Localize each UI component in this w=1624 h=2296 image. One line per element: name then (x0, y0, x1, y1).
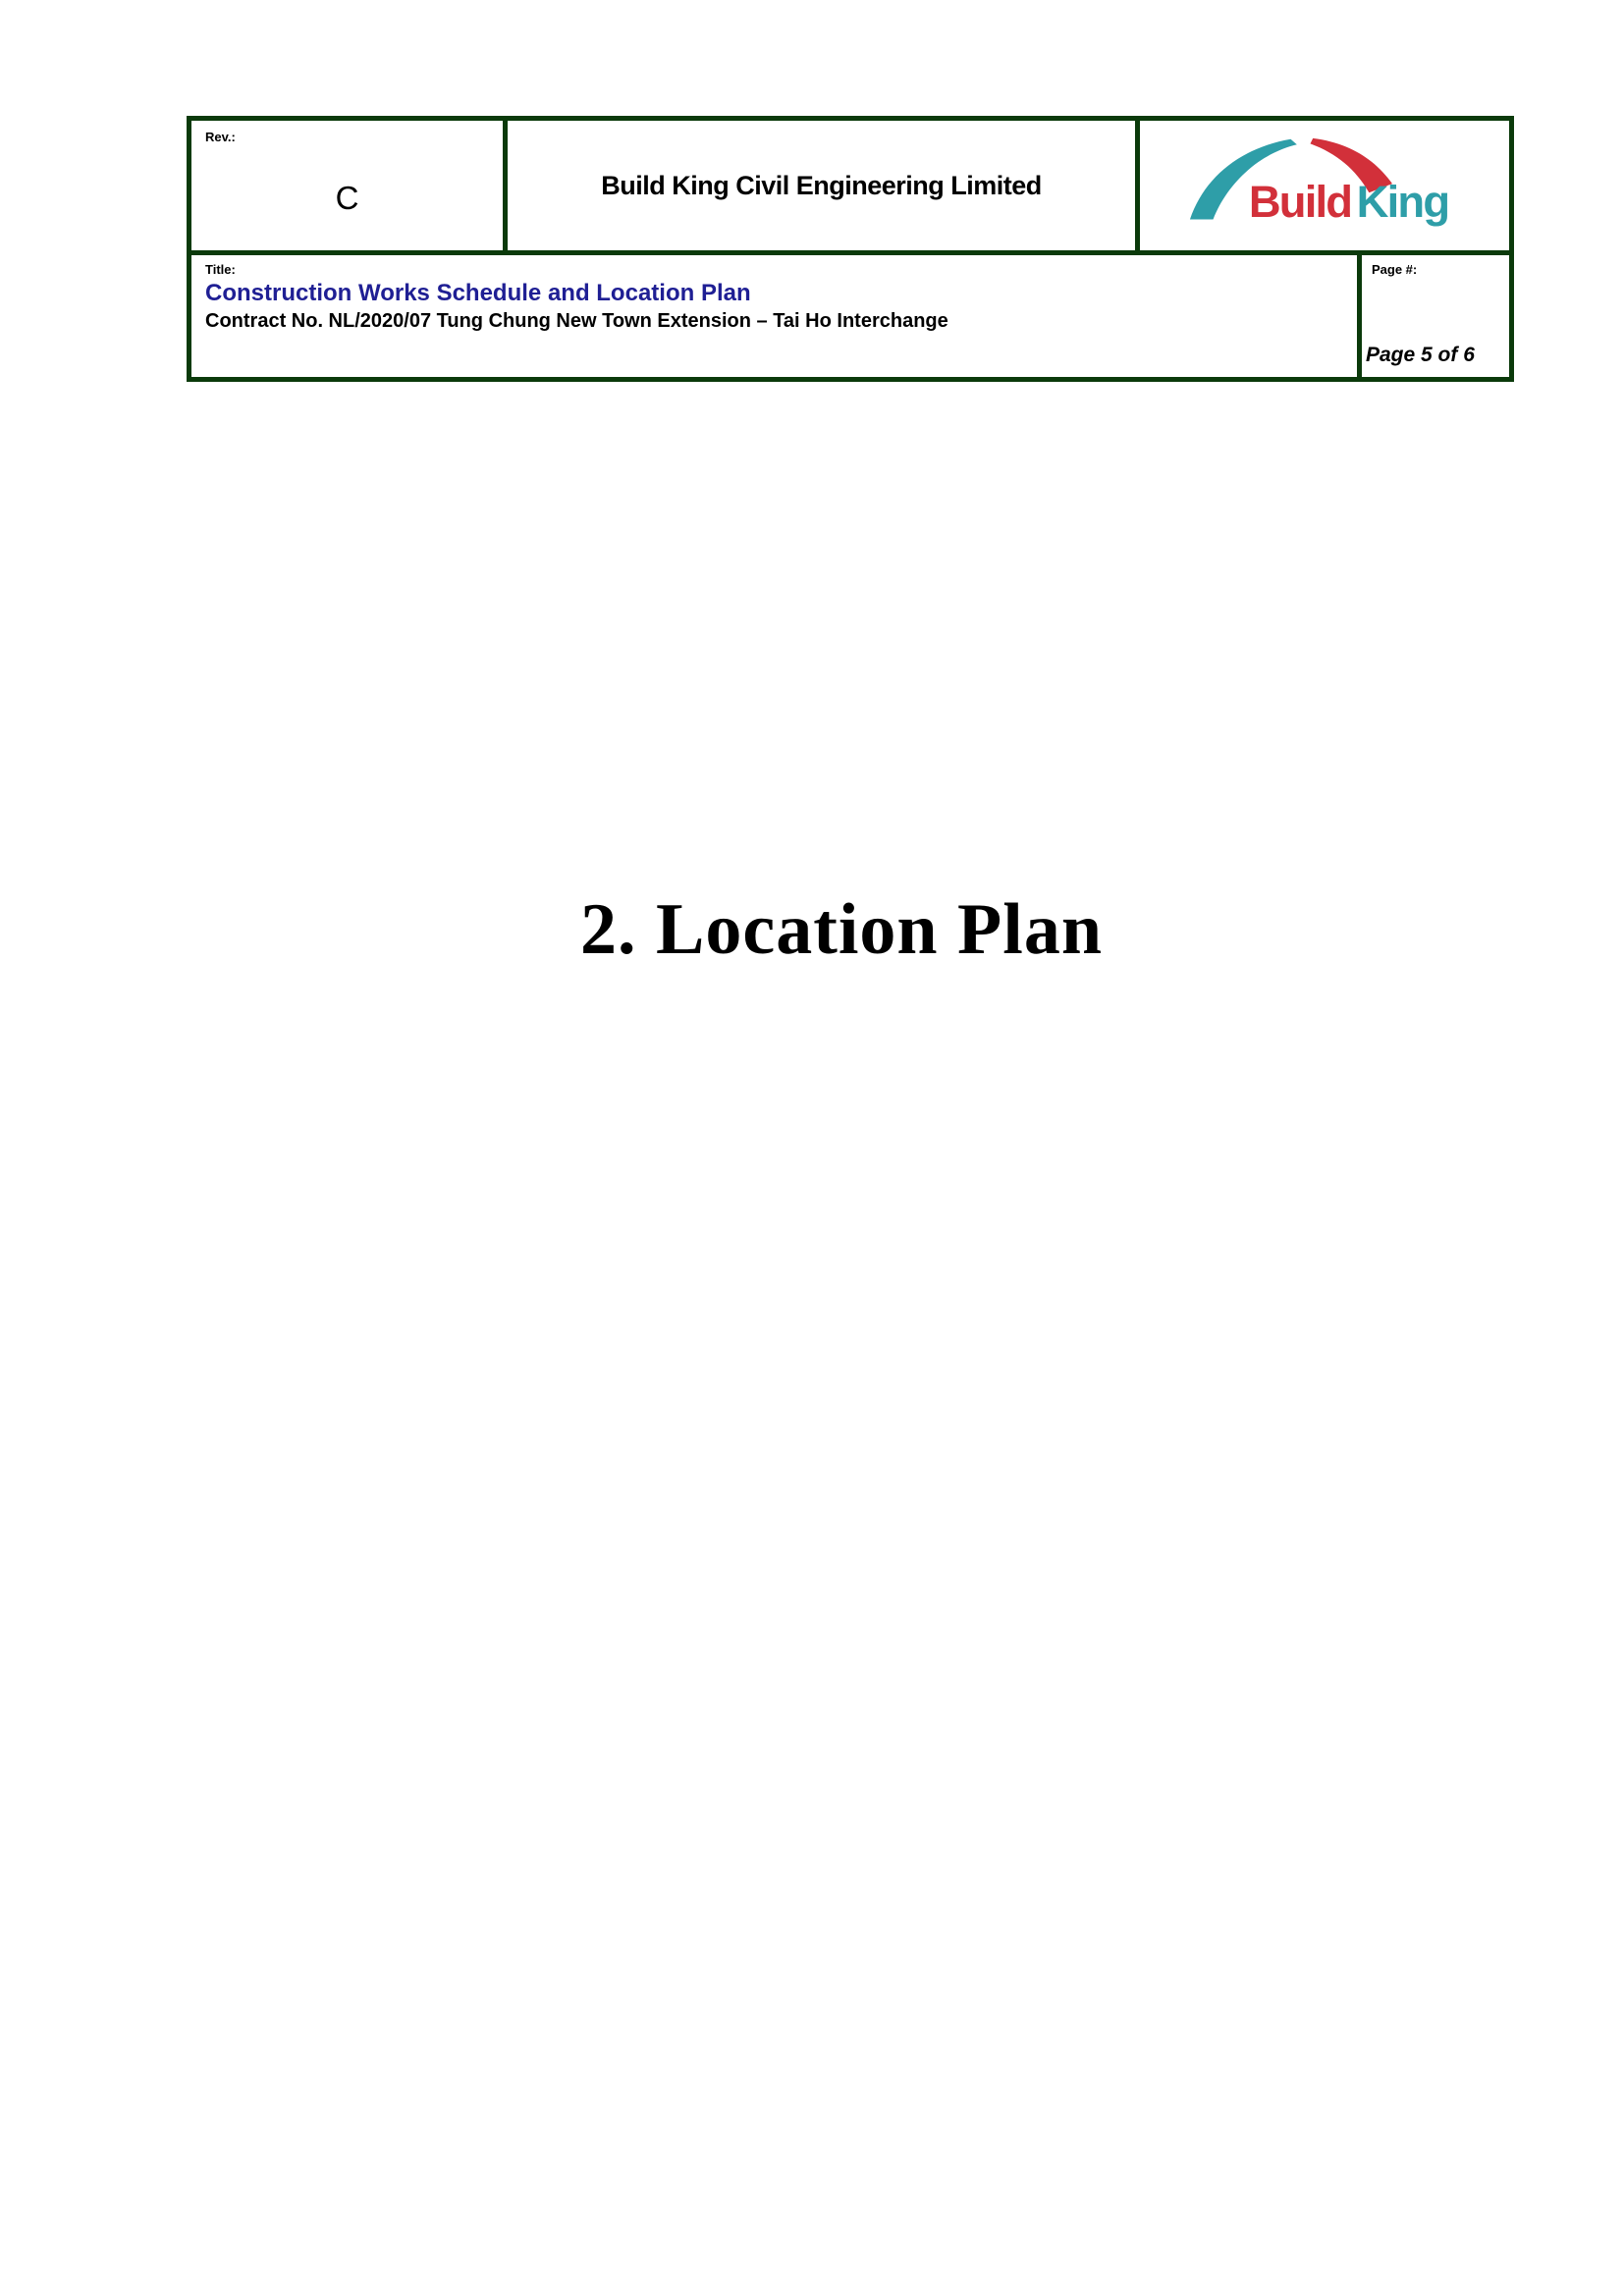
contract-subtitle: Contract No. NL/2020/07 Tung Chung New T… (205, 310, 1343, 333)
rev-cell: Rev.: C (191, 121, 508, 250)
document-page: { "header": { "rev_label": "Rev.:", "rev… (0, 0, 1624, 2296)
company-name: Build King Civil Engineering Limited (601, 171, 1042, 201)
logo-text-king: King (1357, 177, 1449, 227)
logo-cell: Build King (1140, 121, 1509, 250)
company-cell: Build King Civil Engineering Limited (508, 121, 1140, 250)
title-label: Title: (205, 263, 1343, 277)
page-number-value: Page 5 of 6 (1366, 344, 1505, 367)
header-table: Rev.: C Build King Civil Engineering Lim… (187, 116, 1514, 382)
build-king-logo-icon: Build King (1177, 128, 1472, 243)
document-title: Construction Works Schedule and Location… (205, 280, 1343, 307)
header-row-bottom: Title: Construction Works Schedule and L… (191, 255, 1509, 377)
rev-value: C (205, 144, 489, 244)
section-heading: 2. Location Plan (0, 888, 1624, 972)
logo-text-build: Build (1249, 177, 1351, 227)
title-cell: Title: Construction Works Schedule and L… (191, 255, 1362, 377)
rev-label: Rev.: (205, 131, 489, 144)
page-number-label: Page #: (1372, 263, 1505, 277)
page-number-cell: Page #: Page 5 of 6 (1362, 255, 1509, 377)
header-row-top: Rev.: C Build King Civil Engineering Lim… (191, 121, 1509, 255)
